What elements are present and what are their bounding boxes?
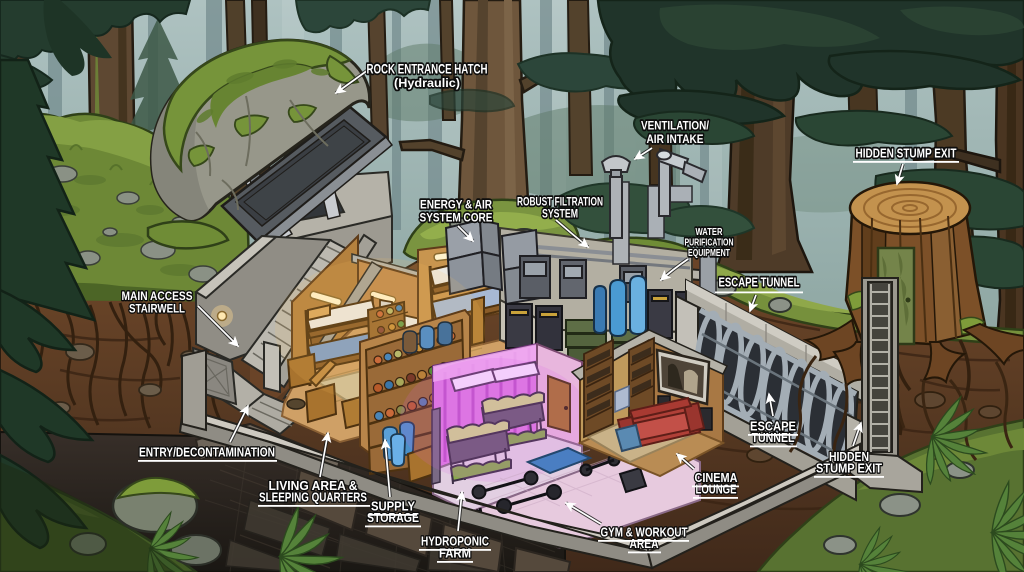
svg-text:LOUNGE: LOUNGE [696, 483, 737, 497]
svg-text:AIR INTAKE: AIR INTAKE [647, 132, 704, 146]
svg-text:VENTILATION/: VENTILATION/ [641, 119, 710, 133]
svg-text:SYSTEM: SYSTEM [542, 209, 578, 221]
svg-text:ROCK ENTRANCE HATCH: ROCK ENTRANCE HATCH [367, 62, 488, 77]
svg-text:STAIRWELL: STAIRWELL [129, 302, 185, 316]
svg-text:ENTRY/DECONTAMINATION: ENTRY/DECONTAMINATION [139, 446, 275, 460]
svg-text:HIDDEN STUMP EXIT: HIDDEN STUMP EXIT [856, 147, 957, 161]
svg-text:EQUIPMENT: EQUIPMENT [688, 247, 730, 259]
svg-text:AREA: AREA [630, 537, 659, 551]
svg-text:ROBUST FILTRATION: ROBUST FILTRATION [517, 197, 603, 209]
svg-text:(Hydraulic): (Hydraulic) [394, 76, 460, 90]
svg-text:TUNNEL: TUNNEL [752, 431, 795, 445]
svg-text:FARM: FARM [439, 547, 471, 561]
svg-text:SLEEPING QUARTERS: SLEEPING QUARTERS [259, 491, 367, 505]
svg-text:SYSTEM CORE: SYSTEM CORE [420, 211, 493, 225]
svg-text:ENERGY & AIR: ENERGY & AIR [420, 198, 492, 212]
svg-text:STUMP EXIT: STUMP EXIT [816, 462, 882, 476]
svg-text:ESCAPE TUNNEL: ESCAPE TUNNEL [719, 276, 800, 290]
svg-text:STORAGE: STORAGE [367, 511, 419, 525]
